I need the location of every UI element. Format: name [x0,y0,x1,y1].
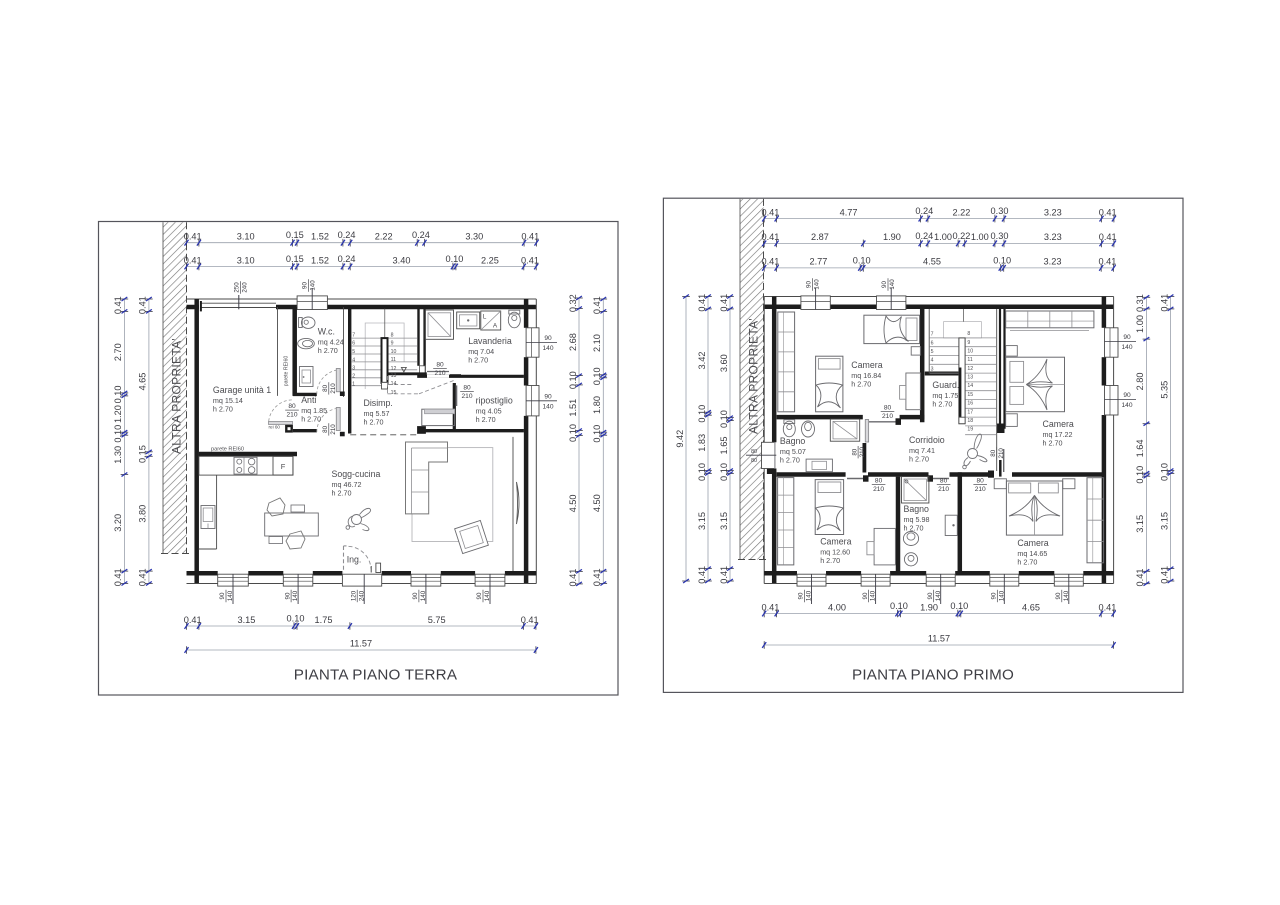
svg-text:ALTRA PROPRIETA': ALTRA PROPRIETA' [170,338,184,454]
svg-text:3.15: 3.15 [237,615,255,625]
svg-text:90: 90 [284,592,291,599]
svg-text:0.41: 0.41 [1098,257,1116,267]
svg-text:3.15: 3.15 [697,512,707,530]
svg-text:0.10: 0.10 [993,255,1011,265]
svg-text:140: 140 [1121,402,1132,409]
svg-text:80: 80 [288,403,296,410]
svg-text:140: 140 [292,590,299,601]
svg-text:Camera: Camera [1017,538,1048,548]
svg-text:h 2.70: h 2.70 [468,355,488,364]
svg-text:90: 90 [476,592,483,599]
svg-text:80: 80 [940,478,948,485]
svg-text:h 2.70: h 2.70 [1017,557,1037,566]
svg-text:h 2.70: h 2.70 [476,415,496,424]
svg-text:140: 140 [814,279,821,290]
svg-text:140: 140 [1121,344,1132,351]
svg-text:0.41: 0.41 [761,602,779,612]
svg-text:9: 9 [391,340,394,346]
svg-text:h 2.70: h 2.70 [909,454,929,463]
svg-text:140: 140 [310,280,317,291]
svg-text:Camera: Camera [820,537,851,547]
svg-text:3.15: 3.15 [1135,515,1145,533]
svg-text:2.22: 2.22 [952,207,970,217]
svg-text:Camera: Camera [1043,419,1074,429]
svg-text:8: 8 [967,331,970,337]
svg-text:3: 3 [931,367,934,373]
svg-text:210: 210 [998,448,1005,459]
svg-text:4.50: 4.50 [592,494,602,512]
svg-text:2.25: 2.25 [481,255,499,265]
svg-text:1.00: 1.00 [934,232,952,242]
svg-text:h 2.70: h 2.70 [904,523,924,532]
svg-text:5.35: 5.35 [1159,381,1169,399]
svg-text:210: 210 [461,393,472,400]
svg-text:16: 16 [967,401,973,407]
svg-text:90: 90 [544,335,552,342]
svg-text:18: 18 [967,418,973,424]
svg-text:4.50: 4.50 [568,494,578,512]
svg-text:0.15: 0.15 [286,230,304,240]
svg-text:0.10: 0.10 [890,601,908,611]
svg-text:h 2.70: h 2.70 [1043,438,1063,447]
svg-text:0.41: 0.41 [719,294,729,312]
svg-text:0.10: 0.10 [113,385,123,403]
svg-text:0.41: 0.41 [697,294,707,312]
svg-text:5: 5 [352,349,355,355]
svg-text:1.00: 1.00 [971,232,989,242]
svg-text:210: 210 [330,424,337,435]
svg-text:3.80: 3.80 [138,505,148,523]
svg-text:h 2.70: h 2.70 [213,404,233,413]
svg-text:1.75: 1.75 [315,615,333,625]
svg-text:0.41: 0.41 [184,232,202,242]
svg-text:0.10: 0.10 [1135,466,1145,484]
svg-text:4.00: 4.00 [828,602,846,612]
svg-text:0.10: 0.10 [445,254,463,264]
svg-text:11: 11 [967,357,972,363]
svg-text:140: 140 [484,590,491,601]
svg-text:10: 10 [967,349,973,355]
svg-text:Bagno: Bagno [904,504,930,514]
svg-text:0.41: 0.41 [184,255,202,265]
svg-text:6: 6 [352,341,355,347]
svg-text:140: 140 [542,345,553,352]
svg-text:11.57: 11.57 [350,639,372,649]
svg-text:6: 6 [931,340,934,346]
svg-text:h 2.70: h 2.70 [932,399,952,408]
svg-text:1: 1 [352,382,355,388]
svg-text:3.15: 3.15 [719,512,729,530]
svg-text:140: 140 [420,590,427,601]
svg-text:140: 140 [998,590,1005,601]
svg-text:0.10: 0.10 [1159,463,1169,481]
svg-text:0.10: 0.10 [719,463,729,481]
svg-text:1.52: 1.52 [311,232,329,242]
svg-text:210: 210 [938,486,949,493]
svg-text:0.41: 0.41 [138,296,148,314]
svg-text:h 2.70: h 2.70 [364,417,384,426]
svg-text:Sogg-cucina: Sogg-cucina [332,469,381,479]
svg-text:9.42: 9.42 [675,430,685,448]
svg-text:0.41: 0.41 [521,615,539,625]
svg-text:3.10: 3.10 [237,232,255,242]
svg-text:0.10: 0.10 [568,371,578,389]
svg-text:250: 250 [234,282,241,293]
svg-text:8: 8 [391,333,394,339]
svg-text:210: 210 [975,486,986,493]
svg-text:90: 90 [991,592,998,599]
svg-text:0.15: 0.15 [286,254,304,264]
svg-text:1.80: 1.80 [592,396,602,414]
svg-text:A: A [493,323,498,330]
svg-text:15: 15 [391,390,397,396]
svg-text:80: 80 [751,449,757,455]
svg-text:13: 13 [967,375,973,381]
svg-text:3.23: 3.23 [1044,257,1062,267]
svg-text:12: 12 [967,366,973,372]
svg-text:140: 140 [889,279,896,290]
svg-text:80: 80 [884,405,892,412]
svg-text:3.60: 3.60 [719,354,729,372]
svg-text:2.87: 2.87 [811,232,829,242]
svg-text:W.c.: W.c. [318,327,335,337]
svg-text:19: 19 [967,427,973,433]
svg-text:90: 90 [862,592,869,599]
svg-text:240: 240 [358,590,365,601]
svg-text:h 2.70: h 2.70 [780,455,800,464]
svg-text:Guard.: Guard. [932,380,959,390]
svg-text:80: 80 [322,384,329,391]
svg-text:0.41: 0.41 [113,568,123,586]
svg-text:80: 80 [875,478,883,485]
svg-text:90: 90 [798,592,805,599]
svg-text:1.52: 1.52 [311,255,329,265]
svg-text:0.41: 0.41 [697,566,707,584]
svg-text:90: 90 [544,393,552,400]
svg-text:0.10: 0.10 [287,613,305,623]
svg-text:1.20: 1.20 [113,405,123,423]
svg-text:parete REI60: parete REI60 [211,447,244,453]
svg-text:140: 140 [227,590,234,601]
svg-text:Ing.: Ing. [347,555,362,565]
svg-text:80: 80 [851,448,858,455]
svg-text:4.65: 4.65 [1022,602,1040,612]
svg-text:3.30: 3.30 [465,232,483,242]
svg-text:0.41: 0.41 [1099,207,1117,217]
svg-text:2.80: 2.80 [1135,372,1145,390]
svg-text:14: 14 [967,383,973,389]
svg-text:2: 2 [352,373,355,379]
svg-text:0.10: 0.10 [592,425,602,443]
svg-text:14: 14 [391,381,397,387]
svg-text:0.10: 0.10 [568,424,578,442]
svg-text:0.10: 0.10 [853,255,871,265]
svg-text:3.23: 3.23 [1044,207,1062,217]
svg-text:90: 90 [1055,592,1062,599]
svg-text:80: 80 [977,478,985,485]
svg-text:90: 90 [881,281,888,288]
svg-text:0.41: 0.41 [592,296,602,314]
svg-text:3.42: 3.42 [697,352,707,370]
svg-text:0.41: 0.41 [521,255,539,265]
svg-text:4: 4 [931,358,934,364]
svg-text:1.83: 1.83 [697,434,707,452]
svg-text:210: 210 [286,412,297,419]
svg-text:1.30: 1.30 [113,446,123,464]
svg-text:0.31: 0.31 [1135,294,1145,312]
svg-text:Corridoio: Corridoio [909,435,945,445]
svg-text:1.00: 1.00 [1135,315,1145,333]
svg-text:0.41: 0.41 [592,568,602,586]
svg-text:F: F [281,462,286,471]
svg-text:12: 12 [391,366,397,372]
svg-text:0.24: 0.24 [412,230,430,240]
svg-text:h 2.70: h 2.70 [301,414,321,423]
svg-text:0.41: 0.41 [1098,602,1116,612]
svg-text:0.41: 0.41 [761,257,779,267]
svg-text:0.41: 0.41 [1135,569,1145,587]
svg-text:1.90: 1.90 [883,232,901,242]
svg-text:0.41: 0.41 [761,207,779,217]
svg-text:2.77: 2.77 [809,257,827,267]
svg-text:90: 90 [412,592,419,599]
svg-text:90: 90 [302,282,309,289]
svg-text:3.40: 3.40 [393,255,411,265]
svg-text:11: 11 [391,357,396,363]
svg-text:120: 120 [350,590,357,601]
svg-text:L: L [483,314,487,321]
svg-text:ALTRA PROPRIETA': ALTRA PROPRIETA' [747,318,761,434]
svg-text:0.41: 0.41 [1099,232,1117,242]
svg-text:0.24: 0.24 [915,231,933,241]
svg-text:1.64: 1.64 [1135,439,1145,457]
svg-text:0.41: 0.41 [184,615,202,625]
svg-text:13: 13 [391,373,397,379]
svg-text:0.32: 0.32 [568,294,578,312]
svg-text:1.65: 1.65 [719,437,729,455]
svg-text:210: 210 [434,370,445,377]
svg-text:h 2.70: h 2.70 [820,556,840,565]
svg-text:0.41: 0.41 [521,232,539,242]
svg-text:11.57: 11.57 [928,634,950,644]
svg-text:0.41: 0.41 [568,569,578,587]
svg-text:Disimp.: Disimp. [364,398,393,408]
svg-text:210: 210 [873,486,884,493]
svg-text:0.24: 0.24 [338,254,356,264]
svg-text:0.41: 0.41 [1159,566,1169,584]
svg-text:3.10: 3.10 [237,255,255,265]
svg-text:9: 9 [967,340,970,346]
svg-text:Lavanderia: Lavanderia [468,336,512,346]
svg-text:h 2.70: h 2.70 [318,346,338,355]
svg-text:90: 90 [1123,334,1131,341]
svg-text:1.51: 1.51 [568,399,578,417]
svg-text:0.10: 0.10 [592,367,602,385]
svg-text:2.68: 2.68 [568,333,578,351]
svg-text:5: 5 [931,349,934,355]
svg-text:90: 90 [927,592,934,599]
svg-text:0.41: 0.41 [138,568,148,586]
svg-text:0.10: 0.10 [113,425,123,443]
svg-text:0.41: 0.41 [719,566,729,584]
svg-text:240: 240 [242,282,249,293]
svg-text:rei 60: rei 60 [269,425,281,430]
svg-text:3: 3 [352,366,355,372]
svg-text:2.22: 2.22 [375,232,393,242]
svg-text:0.30: 0.30 [991,206,1009,216]
svg-text:15: 15 [967,392,973,398]
svg-text:4.77: 4.77 [840,207,858,217]
svg-text:Bagno: Bagno [780,436,806,446]
svg-text:0.10: 0.10 [697,463,707,481]
svg-text:4: 4 [352,357,355,363]
svg-text:140: 140 [870,590,877,601]
svg-text:5.75: 5.75 [428,615,446,625]
svg-text:2.10: 2.10 [592,334,602,352]
svg-text:3.20: 3.20 [113,514,123,532]
svg-text:210: 210 [882,413,893,420]
svg-text:10: 10 [391,349,397,355]
svg-text:210: 210 [330,383,337,394]
svg-text:0.30: 0.30 [991,231,1009,241]
svg-text:3.23: 3.23 [1044,232,1062,242]
svg-text:0.10: 0.10 [697,405,707,423]
svg-text:80: 80 [751,458,757,464]
svg-text:parete REI60: parete REI60 [284,356,290,387]
svg-text:PIANTA PIANO PRIMO: PIANTA PIANO PRIMO [852,667,1014,684]
svg-text:0.15: 0.15 [138,445,148,463]
svg-text:0.10: 0.10 [719,410,729,428]
svg-text:Garage unità 1: Garage unità 1 [213,385,271,395]
svg-text:7: 7 [931,332,934,338]
svg-text:0.10: 0.10 [950,601,968,611]
svg-text:0.24: 0.24 [915,206,933,216]
svg-text:140: 140 [1063,590,1070,601]
svg-text:h 2.70: h 2.70 [851,379,871,388]
svg-text:80: 80 [990,449,997,456]
svg-text:2.70: 2.70 [113,343,123,361]
svg-text:Anti: Anti [301,395,316,405]
svg-text:80: 80 [322,425,329,432]
svg-text:h 2.70: h 2.70 [332,488,352,497]
svg-text:90: 90 [219,592,226,599]
svg-text:140: 140 [935,590,942,601]
svg-text:210: 210 [859,446,866,457]
svg-text:Camera: Camera [851,360,882,370]
svg-text:0.22: 0.22 [952,231,970,241]
svg-text:PIANTA PIANO TERRA: PIANTA PIANO TERRA [294,667,458,684]
svg-text:3.15: 3.15 [1159,512,1169,530]
svg-text:140: 140 [806,590,813,601]
svg-text:4.55: 4.55 [923,257,941,267]
svg-text:80: 80 [463,385,471,392]
svg-text:0.41: 0.41 [761,232,779,242]
svg-text:1.90: 1.90 [920,602,938,612]
svg-text:17: 17 [967,409,973,415]
svg-text:0.41: 0.41 [113,296,123,314]
svg-text:90: 90 [1123,392,1131,399]
svg-text:4.65: 4.65 [138,373,148,391]
svg-text:0.41: 0.41 [1159,294,1169,312]
svg-text:90: 90 [806,281,813,288]
svg-text:7: 7 [352,333,355,339]
svg-text:140: 140 [542,403,553,410]
svg-text:0.24: 0.24 [338,230,356,240]
svg-text:ripostiglio: ripostiglio [476,396,513,406]
svg-text:80: 80 [436,362,444,369]
